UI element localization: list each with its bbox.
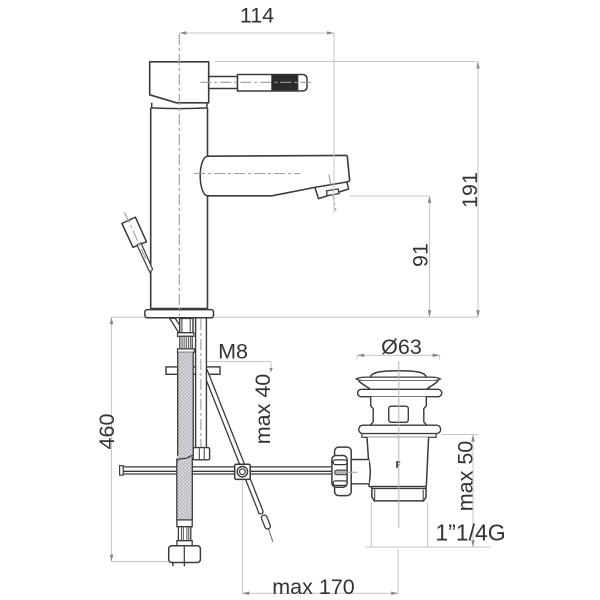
svg-text:191: 191 — [458, 172, 482, 208]
svg-text:1”1/4G: 1”1/4G — [435, 520, 505, 546]
svg-text:max 170: max 170 — [272, 575, 355, 599]
svg-text:Ø63: Ø63 — [381, 335, 422, 359]
svg-text:460: 460 — [95, 414, 119, 450]
svg-text:114: 114 — [240, 4, 274, 28]
svg-text:max 40: max 40 — [251, 374, 275, 445]
svg-text:91: 91 — [409, 243, 433, 267]
svg-text:M8: M8 — [218, 340, 248, 364]
svg-text:max 50: max 50 — [454, 441, 478, 512]
